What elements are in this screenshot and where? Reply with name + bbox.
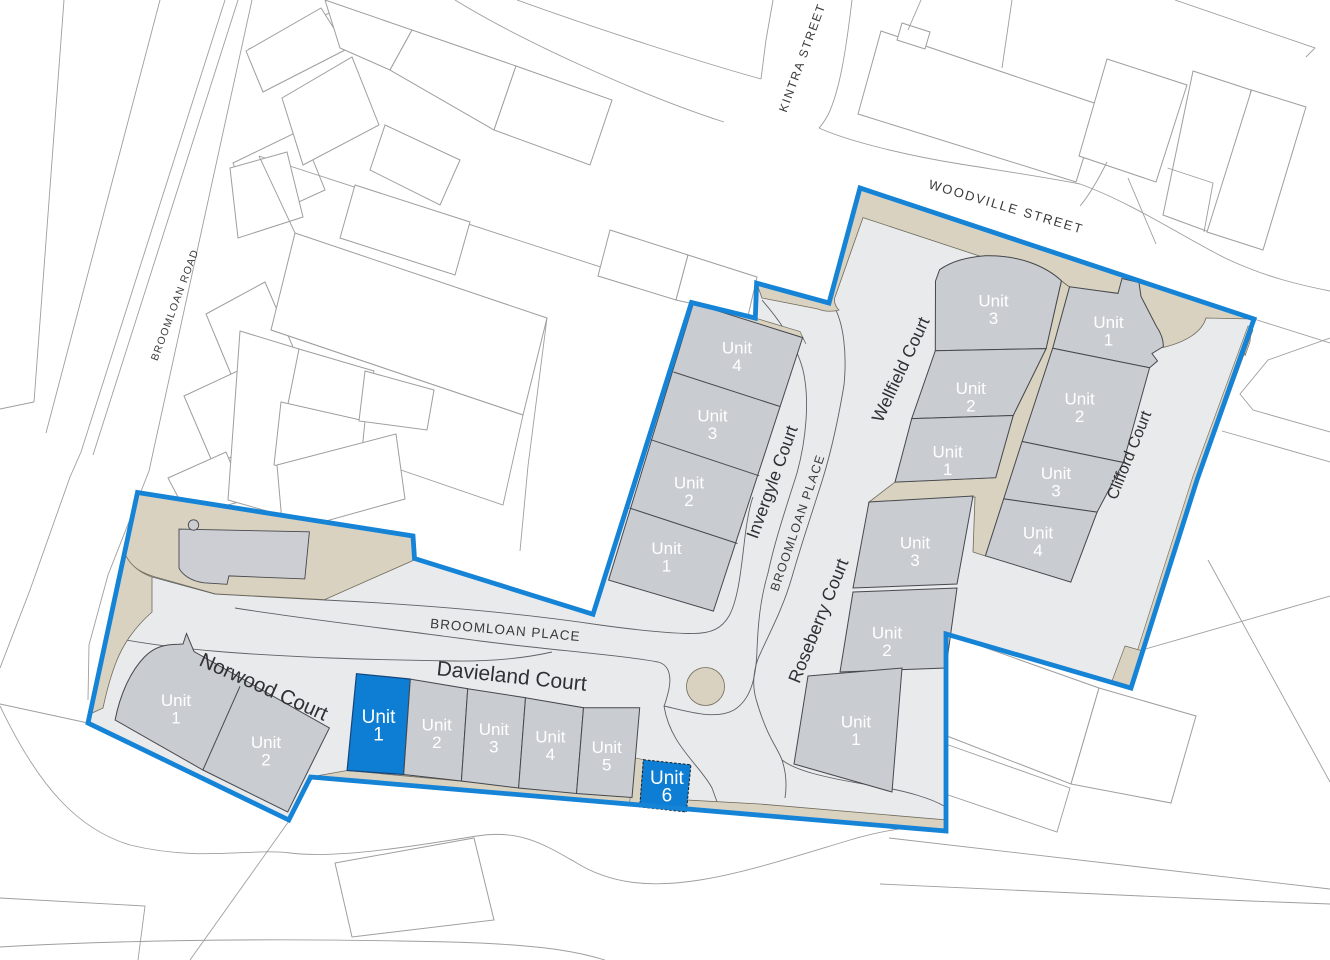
svg-text:Unit: Unit [1023,523,1054,542]
svg-text:Unit: Unit [651,539,682,558]
svg-text:Unit: Unit [535,727,566,746]
svg-text:1: 1 [943,460,952,479]
svg-text:3: 3 [1051,481,1060,500]
svg-text:Unit: Unit [841,712,872,731]
svg-text:2: 2 [1075,407,1084,426]
svg-text:1: 1 [851,730,860,749]
svg-text:4: 4 [546,745,555,764]
svg-text:2: 2 [684,491,693,510]
svg-text:Unit: Unit [872,623,903,642]
svg-text:Unit: Unit [592,738,623,757]
svg-text:1: 1 [171,708,180,727]
svg-text:2: 2 [261,750,270,769]
svg-text:Unit: Unit [161,691,192,710]
svg-text:1: 1 [662,556,671,575]
svg-text:3: 3 [489,737,498,756]
svg-text:4: 4 [1033,541,1042,560]
svg-text:2: 2 [432,733,441,752]
svg-text:Unit: Unit [479,720,510,739]
svg-text:6: 6 [662,786,673,807]
svg-text:5: 5 [602,756,611,775]
svg-text:Unit: Unit [1064,389,1095,408]
svg-text:Unit: Unit [674,473,705,492]
svg-text:Unit: Unit [1093,313,1124,332]
svg-text:Unit: Unit [1041,464,1072,483]
svg-text:1: 1 [1104,330,1113,349]
svg-text:2: 2 [882,641,891,660]
svg-text:3: 3 [910,551,919,570]
svg-text:Unit: Unit [978,291,1009,310]
svg-text:Unit: Unit [900,533,931,552]
svg-text:1: 1 [373,725,384,746]
svg-text:4: 4 [732,356,741,375]
svg-text:3: 3 [989,309,998,328]
svg-text:Unit: Unit [722,338,753,357]
svg-text:Unit: Unit [932,442,963,461]
svg-text:Unit: Unit [697,406,728,425]
svg-text:Unit: Unit [956,379,987,398]
svg-text:3: 3 [708,424,717,443]
svg-text:2: 2 [966,396,975,415]
svg-text:Unit: Unit [422,715,453,734]
svg-text:Unit: Unit [251,733,282,752]
